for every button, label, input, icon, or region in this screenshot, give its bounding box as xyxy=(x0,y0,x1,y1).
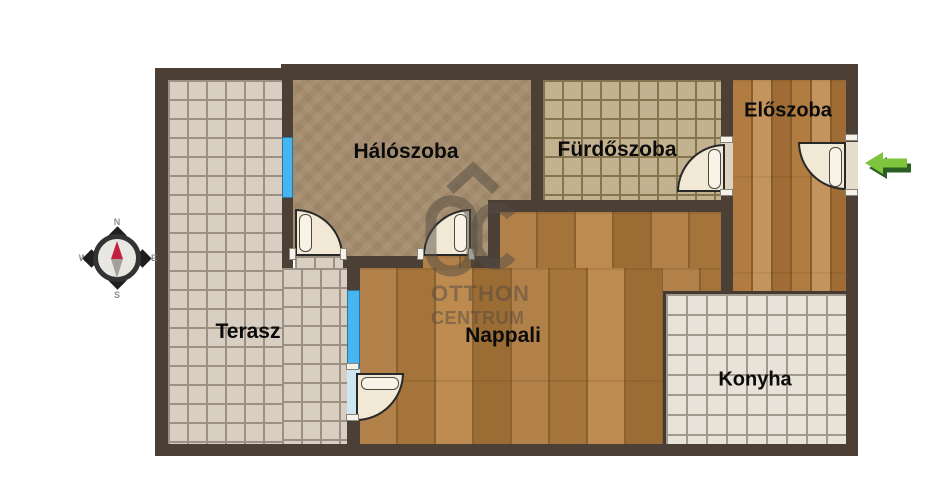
konyha-divider-horizontal xyxy=(663,291,846,294)
jamb xyxy=(346,414,359,421)
wall-top-terasz xyxy=(155,68,293,80)
compass-needle-south xyxy=(111,259,123,278)
nappali-floor-right xyxy=(663,268,721,291)
door-leaf xyxy=(708,149,721,189)
wall-right-lower xyxy=(846,190,858,444)
entrance-arrow-icon xyxy=(862,148,914,184)
compass-needle-north xyxy=(111,241,123,259)
wall-eloszoba-lower xyxy=(721,192,733,293)
wall-terasz-nappali-upper xyxy=(347,256,360,290)
compass-south-label: S xyxy=(114,290,120,300)
label-furdoszoba: Fürdőszoba xyxy=(558,138,677,162)
otthon-centrum-logo xyxy=(420,160,550,280)
compass-rose: N E S W xyxy=(77,212,157,310)
label-konyha: Konyha xyxy=(718,369,791,392)
label-terasz: Terasz xyxy=(216,320,281,344)
window-terasz-bedroom xyxy=(282,137,293,198)
terasz-floor-upper xyxy=(168,80,282,444)
entrance-opening xyxy=(846,142,858,190)
door-leaf xyxy=(829,147,842,187)
jamb xyxy=(289,248,296,260)
wall-top-main xyxy=(281,64,858,80)
wall-eloszoba-upper xyxy=(721,80,733,143)
window-terasz-nappali xyxy=(347,290,360,369)
wall-right-upper xyxy=(846,64,858,142)
konyha-divider-vertical xyxy=(663,291,666,444)
jamb xyxy=(720,136,733,143)
jamb xyxy=(845,134,858,141)
label-eloszoba: Előszoba xyxy=(744,100,832,123)
label-haloszoba: Hálószoba xyxy=(353,140,458,164)
door-sill-terasz xyxy=(295,256,343,268)
wall-bottom xyxy=(155,444,858,456)
door-leaf xyxy=(299,214,312,252)
jamb xyxy=(340,248,347,260)
door-leaf xyxy=(361,377,399,390)
wall-terasz-nappali-lower xyxy=(347,421,360,444)
label-nappali: Nappali xyxy=(465,324,541,348)
watermark-line1: OTTHON xyxy=(431,283,530,305)
terasz-floor-lower xyxy=(282,268,347,444)
jamb xyxy=(346,363,359,370)
floorplan: OTTHON CENTRUM Terasz Hálószoba Fürdőszo… xyxy=(0,0,950,500)
jamb xyxy=(720,189,733,196)
jamb xyxy=(845,189,858,196)
